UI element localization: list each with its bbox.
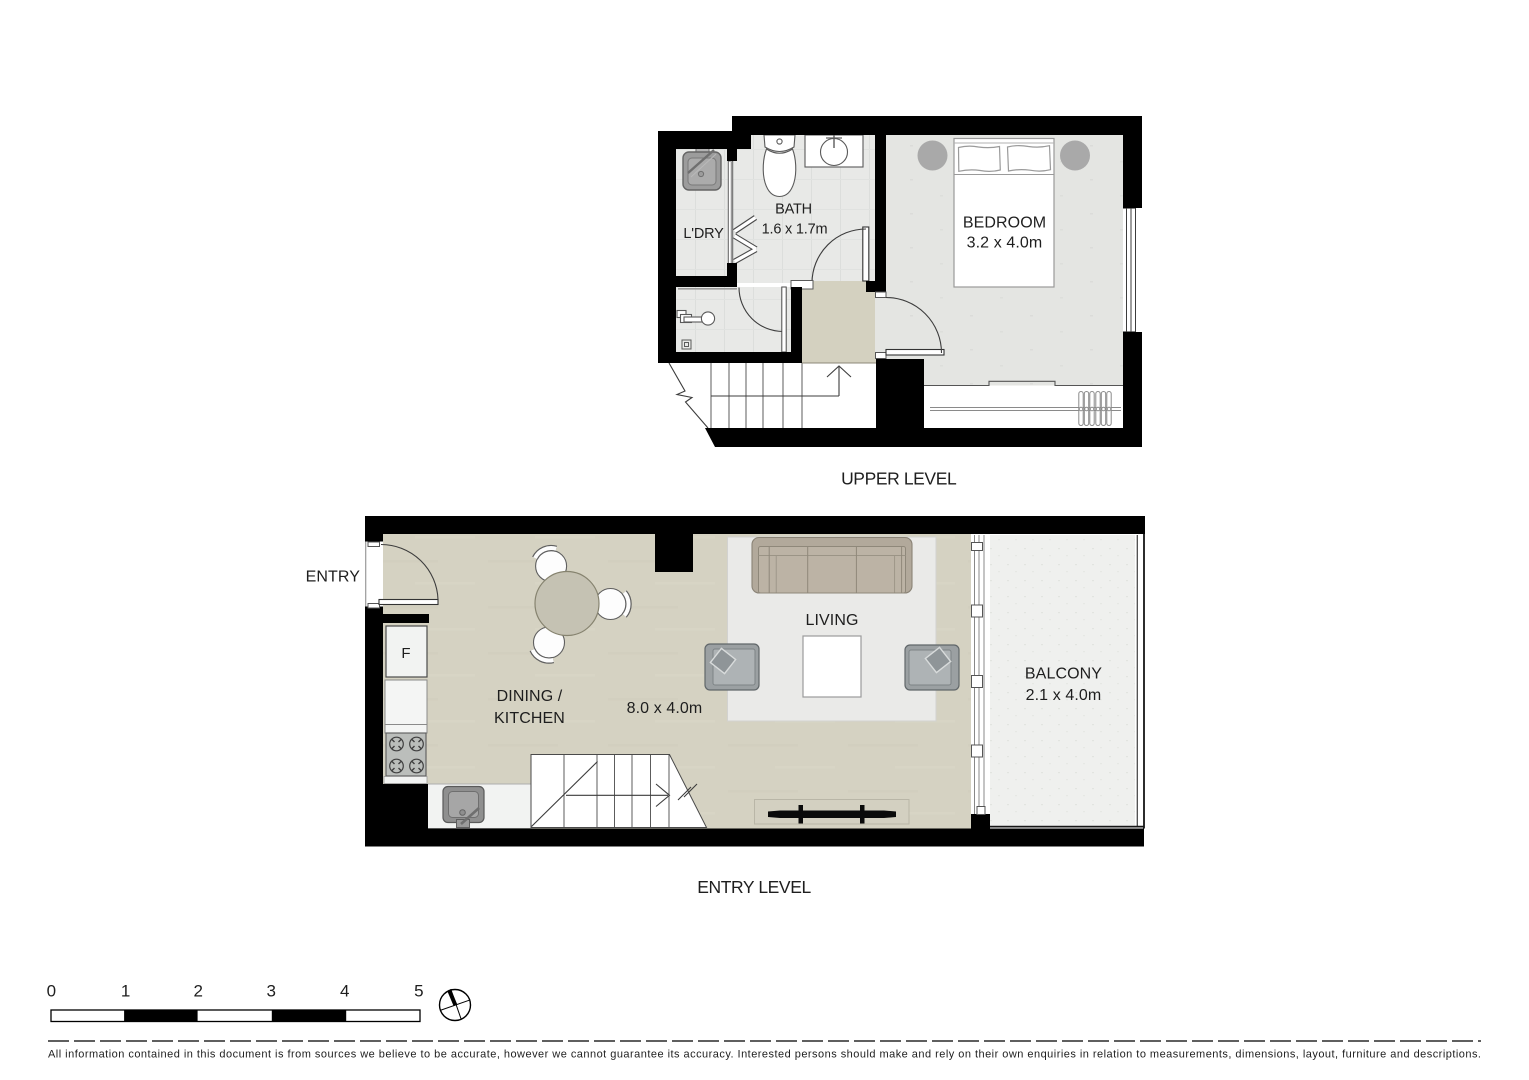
svg-text:2.1 x 4.0m: 2.1 x 4.0m xyxy=(1026,687,1102,704)
svg-text:LIVING: LIVING xyxy=(805,612,858,629)
svg-text:All information contained in t: All information contained in this docume… xyxy=(48,1049,1481,1061)
svg-text:BALCONY: BALCONY xyxy=(1025,666,1102,683)
svg-text:BATH: BATH xyxy=(775,202,812,218)
svg-text:F: F xyxy=(401,645,410,662)
svg-text:DINING /: DINING / xyxy=(497,688,563,705)
svg-text:0: 0 xyxy=(47,982,56,1001)
svg-text:ENTRY: ENTRY xyxy=(306,569,361,586)
svg-text:8.0 x 4.0m: 8.0 x 4.0m xyxy=(627,700,703,717)
svg-text:5: 5 xyxy=(414,982,423,1001)
svg-text:KITCHEN: KITCHEN xyxy=(494,710,565,727)
svg-text:L'DRY: L'DRY xyxy=(683,226,724,242)
svg-text:BEDROOM: BEDROOM xyxy=(963,215,1046,232)
svg-text:3.2 x 4.0m: 3.2 x 4.0m xyxy=(967,235,1043,252)
svg-text:UPPER LEVEL: UPPER LEVEL xyxy=(841,469,957,489)
svg-text:3: 3 xyxy=(266,982,275,1001)
svg-text:ENTRY LEVEL: ENTRY LEVEL xyxy=(697,877,811,897)
svg-text:1: 1 xyxy=(121,982,130,1001)
svg-text:1.6 x 1.7m: 1.6 x 1.7m xyxy=(762,222,828,238)
svg-text:4: 4 xyxy=(340,982,349,1001)
svg-text:2: 2 xyxy=(193,982,202,1001)
